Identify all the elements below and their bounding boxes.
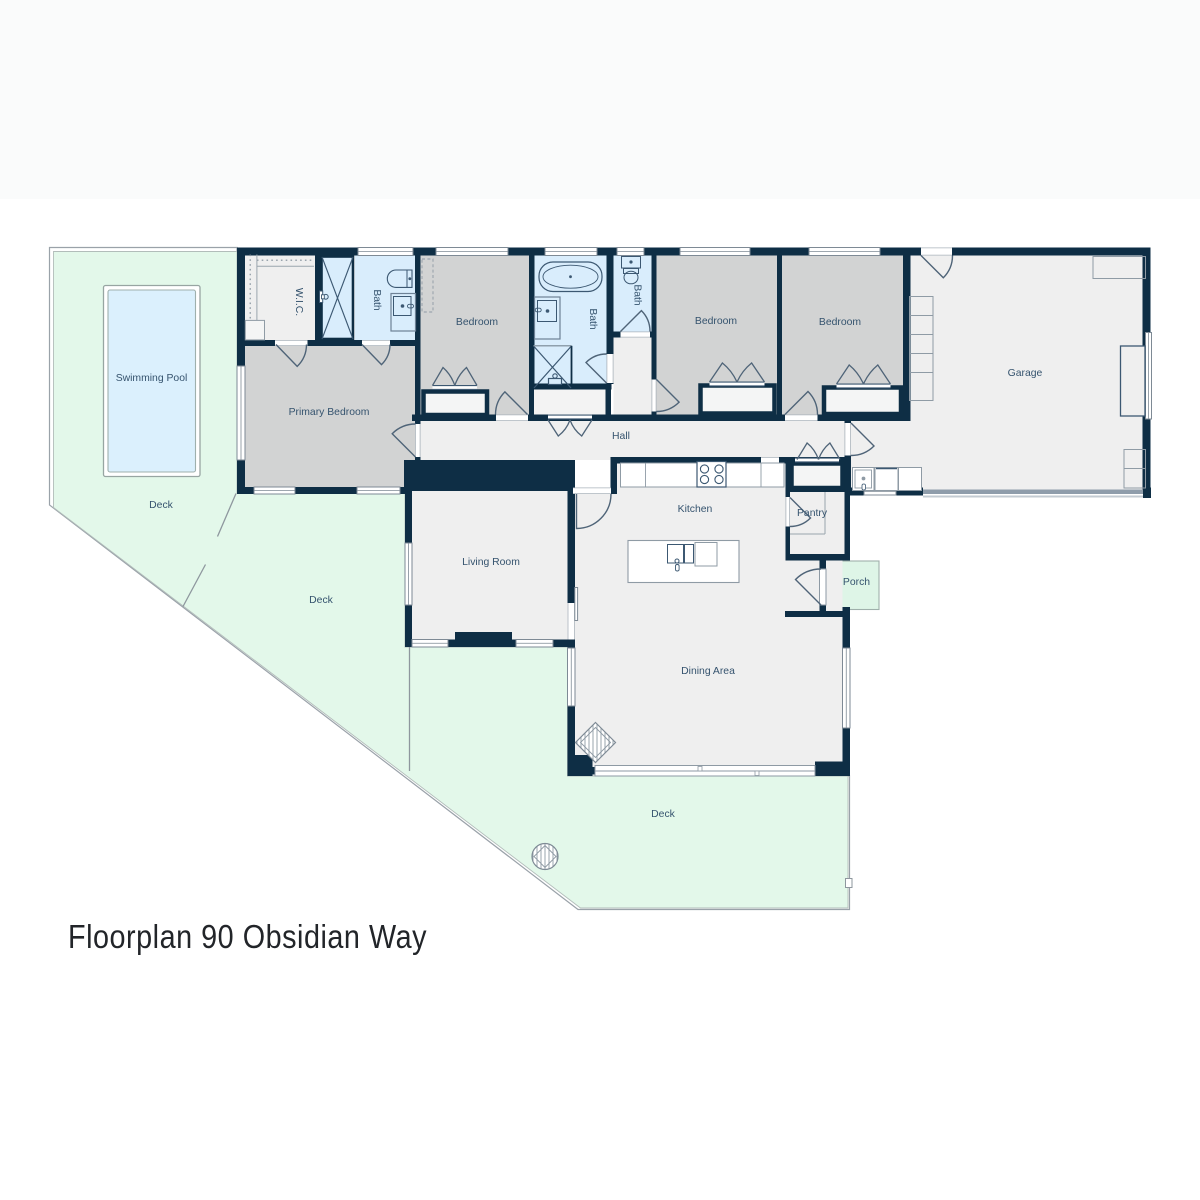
svg-text:Deck: Deck <box>309 595 333 606</box>
svg-text:Deck: Deck <box>149 500 173 511</box>
svg-text:W.I.C.: W.I.C. <box>293 288 304 316</box>
svg-text:Pantry: Pantry <box>797 508 828 519</box>
svg-text:Primary Bedroom: Primary Bedroom <box>289 407 370 418</box>
svg-text:Bedroom: Bedroom <box>456 317 498 328</box>
svg-text:Bath: Bath <box>632 284 643 306</box>
svg-text:Bedroom: Bedroom <box>819 317 861 328</box>
svg-text:Garage: Garage <box>1008 368 1043 379</box>
svg-text:Porch: Porch <box>843 577 870 588</box>
svg-text:Dining Area: Dining Area <box>681 666 735 677</box>
svg-text:Floorplan 90 Obsidian Way: Floorplan 90 Obsidian Way <box>68 918 427 955</box>
svg-text:Swimming Pool: Swimming Pool <box>116 373 188 384</box>
svg-text:Deck: Deck <box>651 809 675 820</box>
svg-text:Living Room: Living Room <box>462 557 520 568</box>
svg-text:Bedroom: Bedroom <box>695 316 737 327</box>
svg-text:Bath: Bath <box>371 289 382 311</box>
svg-text:Hall: Hall <box>612 431 630 442</box>
svg-text:Kitchen: Kitchen <box>678 504 713 515</box>
svg-text:Bath: Bath <box>587 308 598 330</box>
